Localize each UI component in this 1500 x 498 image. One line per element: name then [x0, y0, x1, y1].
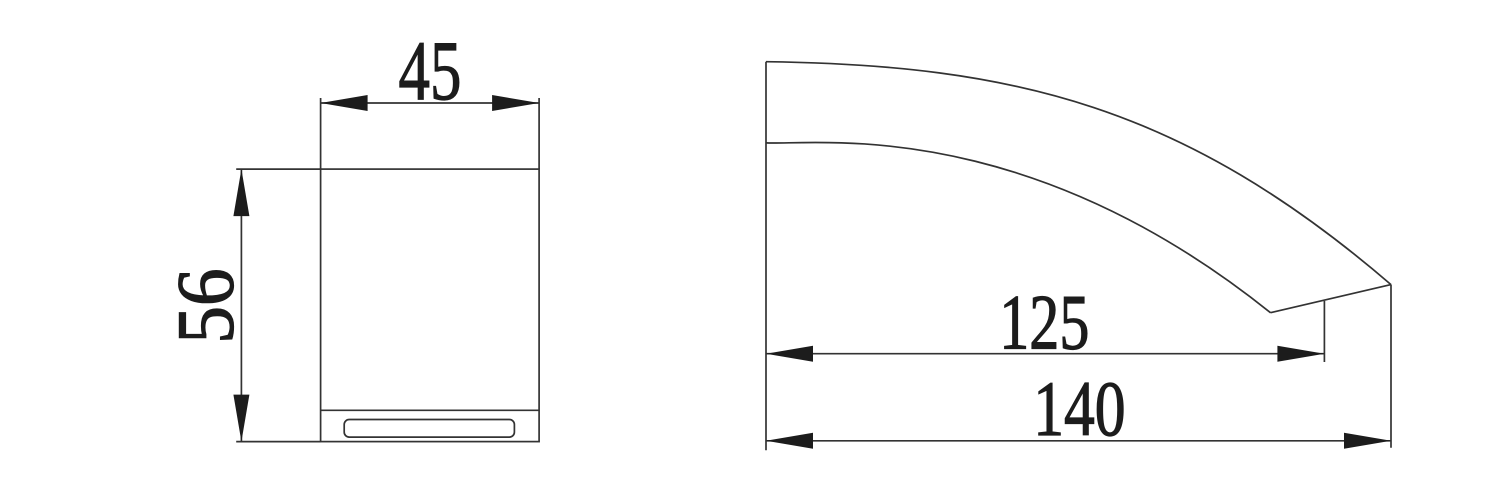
svg-text:45: 45: [399, 24, 462, 118]
svg-text:140: 140: [1033, 366, 1125, 453]
svg-text:56: 56: [161, 268, 252, 343]
svg-text:125: 125: [999, 280, 1089, 366]
